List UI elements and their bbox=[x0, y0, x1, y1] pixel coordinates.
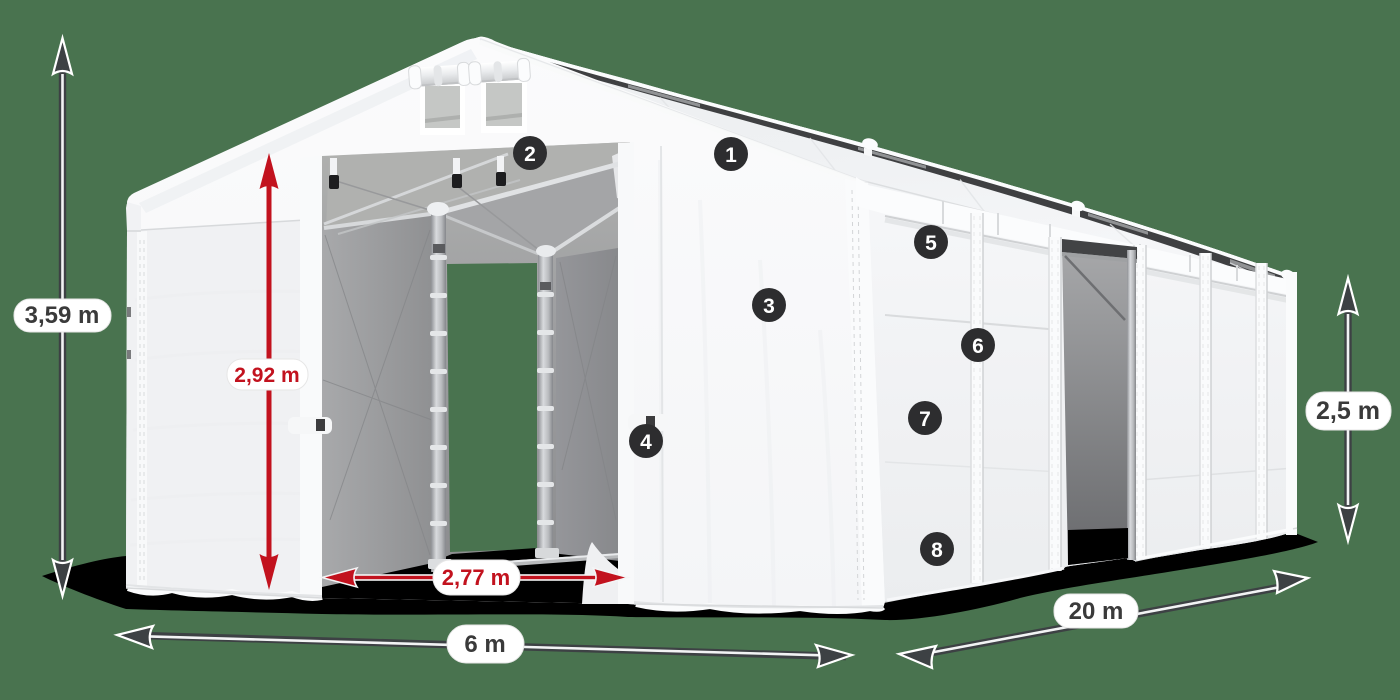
svg-text:3,59 m: 3,59 m bbox=[25, 302, 100, 329]
svg-text:3: 3 bbox=[763, 295, 775, 318]
svg-text:2,77 m: 2,77 m bbox=[442, 565, 511, 590]
svg-text:2,92 m: 2,92 m bbox=[234, 364, 299, 387]
svg-text:4: 4 bbox=[640, 431, 652, 454]
svg-text:6: 6 bbox=[972, 335, 984, 358]
svg-text:8: 8 bbox=[931, 539, 943, 562]
svg-text:1: 1 bbox=[725, 144, 737, 167]
svg-text:5: 5 bbox=[925, 232, 937, 255]
svg-text:2: 2 bbox=[524, 143, 536, 166]
svg-text:20 m: 20 m bbox=[1069, 598, 1124, 625]
svg-text:2,5 m: 2,5 m bbox=[1316, 397, 1380, 425]
svg-text:7: 7 bbox=[919, 408, 931, 431]
svg-text:6 m: 6 m bbox=[464, 631, 505, 658]
